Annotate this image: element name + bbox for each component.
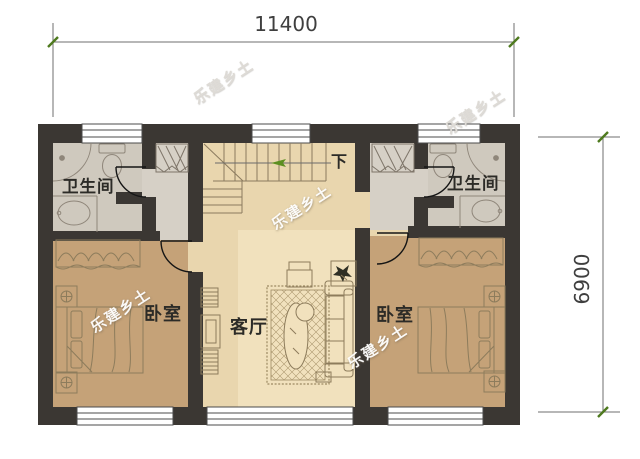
floorplan-canvas: 11400 6900 卫生间 卫生间 卧室 卧室 客厅 下 乐建乡土 乐建乡土 …: [0, 0, 640, 459]
window-bottom-center: [207, 407, 353, 425]
room-label-living: 客厅: [230, 319, 268, 337]
dimension-width-label: 11400: [246, 14, 326, 34]
stairs-down-label: 下: [331, 154, 348, 170]
dimension-top: [48, 23, 519, 117]
room-label-bathroom-right: 卫生间: [447, 176, 500, 193]
dimension-height-label: 6900: [572, 254, 592, 305]
room-label-bedroom-left: 卧室: [144, 306, 182, 324]
floorplan-drawing: [0, 0, 640, 459]
window-top-center: [252, 124, 310, 143]
window-bottom-right: [388, 407, 483, 425]
room-label-bedroom-right: 卧室: [376, 307, 414, 325]
rug: [267, 286, 329, 384]
room-label-bathroom-left: 卫生间: [62, 179, 115, 196]
window-bottom-left: [77, 407, 173, 425]
window-top-left: [82, 124, 142, 143]
